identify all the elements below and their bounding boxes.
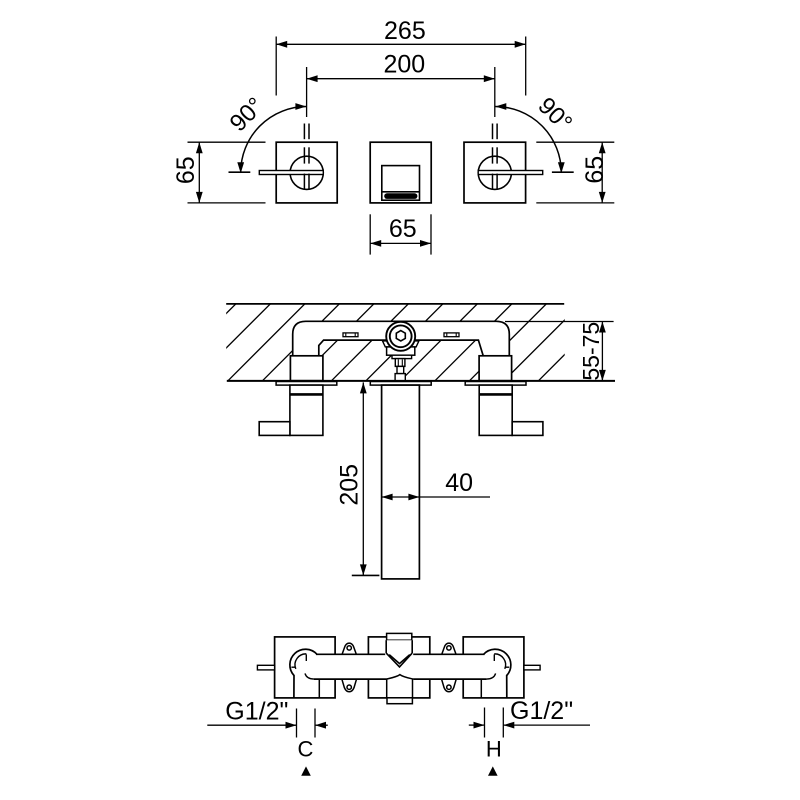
svg-text:200: 200 — [383, 50, 425, 78]
svg-text:H: H — [486, 736, 502, 761]
svg-text:40: 40 — [445, 469, 473, 497]
svg-text:265: 265 — [384, 17, 426, 45]
svg-text:205: 205 — [335, 464, 363, 506]
svg-text:55-75: 55-75 — [578, 322, 604, 381]
svg-text:C: C — [297, 737, 313, 762]
svg-text:G1/2": G1/2" — [510, 697, 573, 725]
svg-text:G1/2": G1/2" — [225, 698, 288, 726]
svg-text:65: 65 — [581, 156, 609, 184]
svg-text:65: 65 — [172, 156, 200, 184]
svg-text:65: 65 — [389, 215, 417, 243]
